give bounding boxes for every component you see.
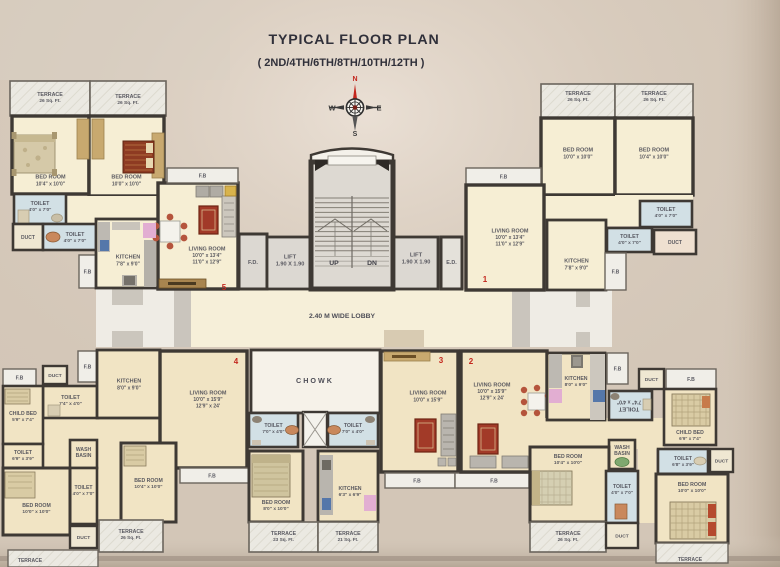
- svg-text:TOILET: TOILET: [344, 423, 363, 429]
- svg-text:TOILET: TOILET: [31, 201, 51, 207]
- svg-text:4'0" x 7'0": 4'0" x 7'0": [618, 240, 641, 246]
- svg-text:F.B: F.B: [413, 479, 421, 485]
- svg-text:F.B: F.B: [208, 474, 216, 480]
- svg-text:LIVING ROOM: LIVING ROOM: [492, 228, 529, 234]
- svg-text:23 Sq. Ft.: 23 Sq. Ft.: [273, 537, 294, 542]
- svg-text:12'9" x 24': 12'9" x 24': [196, 404, 220, 410]
- svg-text:11'0" x 12'9": 11'0" x 12'9": [192, 260, 222, 266]
- svg-text:26 Sq. Ft.: 26 Sq. Ft.: [643, 97, 664, 103]
- svg-text:10'4" x 10'0": 10'4" x 10'0": [554, 460, 582, 466]
- svg-text:KITCHEN: KITCHEN: [117, 379, 141, 385]
- svg-text:1.90 X 1.90: 1.90 X 1.90: [276, 262, 305, 268]
- svg-text:F.B: F.B: [84, 365, 92, 371]
- svg-text:7'0" x 4'0": 7'0" x 4'0": [342, 429, 364, 434]
- svg-text:F.B: F.B: [16, 376, 24, 382]
- svg-text:4: 4: [234, 357, 239, 366]
- svg-text:26 Sq. Ft.: 26 Sq. Ft.: [558, 537, 579, 542]
- svg-text:F.B: F.B: [614, 367, 622, 373]
- svg-text:10'0" x 10'0": 10'0" x 10'0": [112, 181, 142, 187]
- svg-text:1: 1: [483, 275, 488, 284]
- svg-text:10'0" x 15'9": 10'0" x 15'9": [477, 389, 507, 395]
- svg-text:F.B: F.B: [612, 270, 620, 276]
- svg-text:BED ROOM: BED ROOM: [563, 148, 594, 154]
- svg-text:4'0" x 7'0": 4'0" x 7'0": [73, 491, 95, 496]
- svg-text:LIFT: LIFT: [410, 253, 423, 259]
- svg-text:C H O W K: C H O W K: [296, 376, 333, 385]
- svg-text:8'0" x 10'0": 8'0" x 10'0": [263, 506, 289, 512]
- svg-text:TERRACE: TERRACE: [118, 529, 144, 535]
- svg-text:7'4" x 4'0": 7'4" x 4'0": [616, 399, 641, 405]
- svg-text:F.B: F.B: [490, 479, 498, 485]
- svg-text:4'0" x 7'0": 4'0" x 7'0": [64, 238, 87, 244]
- svg-text:5'9" x 7'4": 5'9" x 7'4": [12, 417, 34, 422]
- svg-text:3: 3: [439, 356, 444, 365]
- svg-text:TERRACE: TERRACE: [37, 92, 63, 98]
- svg-text:DUCT: DUCT: [645, 377, 659, 383]
- svg-text:TYPICAL FLOOR PLAN: TYPICAL FLOOR PLAN: [269, 32, 440, 48]
- svg-text:TOILET: TOILET: [620, 234, 640, 240]
- svg-text:1.90 X 1.90: 1.90 X 1.90: [402, 260, 431, 266]
- svg-text:TOILET: TOILET: [66, 232, 86, 238]
- svg-text:11'0" x 12'9": 11'0" x 12'9": [495, 242, 525, 248]
- svg-text:7'8" x 9'0": 7'8" x 9'0": [565, 265, 589, 271]
- svg-text:BED ROOM: BED ROOM: [22, 503, 51, 509]
- svg-text:7'8" x 9'0": 7'8" x 9'0": [116, 261, 140, 267]
- svg-text:TERRACE: TERRACE: [115, 94, 141, 100]
- svg-text:2: 2: [469, 357, 474, 366]
- svg-text:TERRACE: TERRACE: [335, 531, 361, 537]
- svg-text:LIFT: LIFT: [284, 255, 297, 261]
- svg-text:DUCT: DUCT: [48, 373, 62, 379]
- svg-text:W: W: [328, 104, 336, 113]
- svg-text:7'4" x 4'0": 7'4" x 4'0": [59, 401, 82, 407]
- svg-text:26 Sq. Ft.: 26 Sq. Ft.: [567, 97, 588, 103]
- svg-text:LIVING ROOM: LIVING ROOM: [410, 391, 447, 397]
- svg-text:E.D.: E.D.: [446, 260, 457, 266]
- svg-text:S: S: [353, 131, 358, 138]
- svg-text:DUCT: DUCT: [715, 459, 729, 465]
- svg-text:F.B: F.B: [687, 377, 695, 383]
- svg-text:2.40 M WIDE LOBBY: 2.40 M WIDE LOBBY: [309, 313, 376, 320]
- svg-text:6'8" x 3'9": 6'8" x 3'9": [672, 462, 694, 467]
- svg-text:DUCT: DUCT: [77, 535, 91, 541]
- svg-text:TOILET: TOILET: [264, 423, 283, 429]
- svg-text:KITCHEN: KITCHEN: [338, 486, 361, 492]
- svg-text:10'0" x 10'0": 10'0" x 10'0": [563, 154, 593, 160]
- svg-text:TOILET: TOILET: [61, 395, 81, 401]
- svg-text:4'0" x 7'0": 4'0" x 7'0": [655, 213, 678, 219]
- svg-text:TOILET: TOILET: [657, 207, 677, 213]
- svg-text:26 Sq. Ft.: 26 Sq. Ft.: [117, 100, 138, 106]
- svg-text:DUCT: DUCT: [21, 235, 35, 241]
- svg-text:F.B: F.B: [500, 175, 508, 181]
- svg-text:BED ROOM: BED ROOM: [111, 175, 142, 181]
- svg-text:E: E: [376, 104, 381, 113]
- svg-text:LIVING ROOM: LIVING ROOM: [474, 382, 511, 388]
- svg-text:TOILET: TOILET: [618, 405, 639, 411]
- svg-text:10'0" x 10'0": 10'0" x 10'0": [678, 488, 706, 494]
- svg-text:( 2ND/4TH/6TH/8TH/10TH/12TH ): ( 2ND/4TH/6TH/8TH/10TH/12TH ): [258, 57, 425, 69]
- svg-text:10'4" x 10'0": 10'4" x 10'0": [639, 154, 669, 160]
- svg-text:F.B: F.B: [199, 174, 207, 180]
- svg-text:BED ROOM: BED ROOM: [554, 454, 583, 460]
- svg-text:6'9" x 7'4": 6'9" x 7'4": [679, 436, 701, 441]
- svg-text:21 Sq. Ft.: 21 Sq. Ft.: [338, 537, 359, 542]
- svg-text:KITCHEN: KITCHEN: [116, 255, 140, 261]
- svg-text:KITCHEN: KITCHEN: [564, 376, 587, 382]
- svg-text:10'0" x 10'0": 10'0" x 10'0": [22, 509, 50, 515]
- svg-text:BASIN: BASIN: [614, 451, 630, 457]
- svg-text:UP: UP: [329, 260, 339, 267]
- svg-text:10'0" x 15'9": 10'0" x 15'9": [413, 397, 443, 403]
- svg-text:BED ROOM: BED ROOM: [639, 148, 670, 154]
- svg-text:TERRACE: TERRACE: [555, 531, 581, 537]
- svg-text:N: N: [352, 76, 357, 83]
- svg-text:6'3" x 6'9": 6'3" x 6'9": [339, 492, 362, 498]
- svg-text:BED ROOM: BED ROOM: [134, 478, 163, 484]
- svg-text:10'4" x 10'0": 10'4" x 10'0": [134, 484, 162, 490]
- svg-text:5: 5: [222, 283, 227, 292]
- svg-text:BED ROOM: BED ROOM: [35, 175, 66, 181]
- svg-text:DUCT: DUCT: [615, 534, 629, 540]
- svg-text:DN: DN: [367, 260, 377, 267]
- svg-text:4'0" x 7'0": 4'0" x 7'0": [611, 490, 633, 495]
- svg-text:8'0" x 9'0": 8'0" x 9'0": [117, 385, 141, 391]
- svg-text:KITCHEN: KITCHEN: [564, 259, 588, 265]
- svg-text:10'0" x 15'9": 10'0" x 15'9": [193, 397, 223, 403]
- svg-text:26 Sq. Ft.: 26 Sq. Ft.: [39, 98, 60, 104]
- svg-text:TERRACE: TERRACE: [18, 558, 43, 564]
- svg-text:BED ROOM: BED ROOM: [678, 482, 707, 488]
- svg-text:LIVING ROOM: LIVING ROOM: [189, 246, 226, 252]
- svg-text:TERRACE: TERRACE: [271, 531, 297, 537]
- svg-text:7'0" x 4'0": 7'0" x 4'0": [262, 429, 284, 434]
- svg-text:BASIN: BASIN: [76, 453, 92, 459]
- svg-text:F.D.: F.D.: [248, 260, 258, 266]
- svg-text:TERRACE: TERRACE: [678, 557, 703, 563]
- svg-text:F.B: F.B: [84, 270, 92, 276]
- svg-text:TERRACE: TERRACE: [565, 91, 591, 97]
- svg-text:4'0" x 7'0": 4'0" x 7'0": [29, 207, 52, 213]
- svg-text:10'4" x 10'0": 10'4" x 10'0": [36, 181, 66, 187]
- svg-text:10'0" x 13'4": 10'0" x 13'4": [495, 235, 525, 241]
- svg-text:TERRACE: TERRACE: [641, 91, 667, 97]
- svg-text:6'9" x 3'9": 6'9" x 3'9": [12, 456, 34, 461]
- svg-text:DUCT: DUCT: [668, 240, 682, 246]
- svg-text:LIVING ROOM: LIVING ROOM: [190, 390, 227, 396]
- svg-text:26 Sq. Ft.: 26 Sq. Ft.: [121, 535, 142, 540]
- svg-text:12'9" x 24': 12'9" x 24': [480, 396, 504, 402]
- svg-text:10'0" x 13'4": 10'0" x 13'4": [192, 253, 222, 259]
- svg-text:8'0" x 9'0": 8'0" x 9'0": [565, 382, 588, 388]
- svg-text:BED ROOM: BED ROOM: [262, 500, 291, 506]
